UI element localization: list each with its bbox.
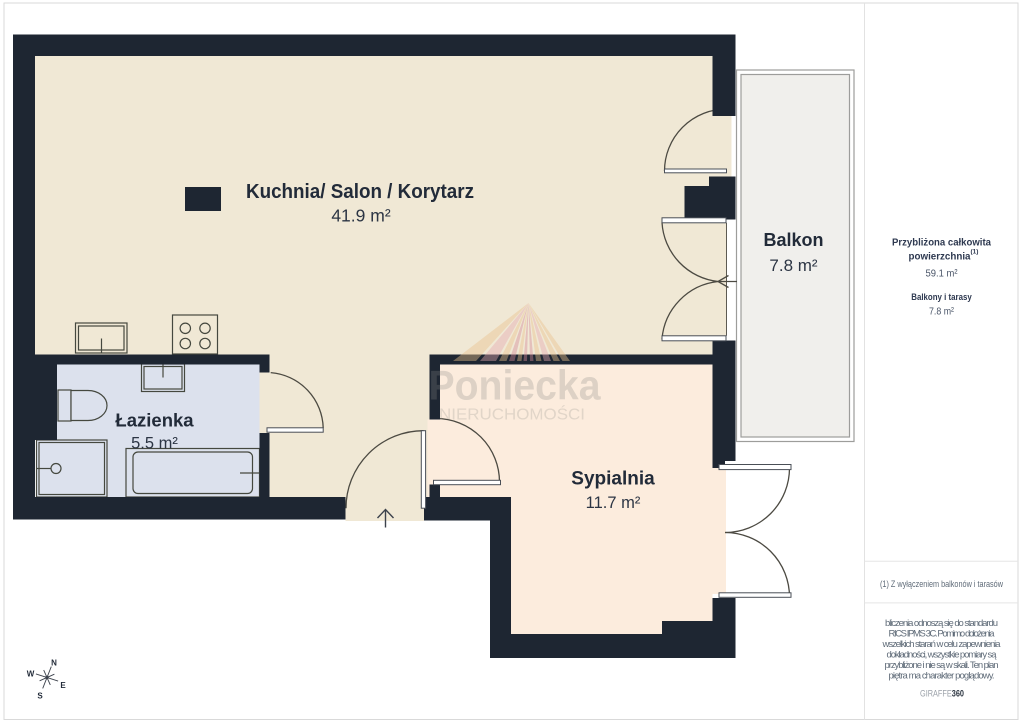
svg-text:Balkony i tarasy: Balkony i tarasy [911, 292, 972, 302]
svg-text:wszelkich starań w celu zapewn: wszelkich starań w celu zapewnienia [882, 639, 1002, 650]
svg-text:11.7 m²: 11.7 m² [586, 494, 641, 512]
svg-text:E: E [60, 681, 66, 690]
svg-text:NIERUCHOMOŚCI: NIERUCHOMOŚCI [439, 406, 585, 424]
svg-text:59.1 m²: 59.1 m² [926, 269, 959, 280]
svg-text:powierzchnia: powierzchnia [909, 251, 971, 263]
svg-text:N: N [51, 659, 57, 668]
svg-text:5.5 m²: 5.5 m² [131, 435, 178, 453]
svg-text:RICS IPMS 3C. Pomimo dołożenia: RICS IPMS 3C. Pomimo dołożenia [889, 629, 996, 640]
svg-text:GIRAFFE360: GIRAFFE360 [920, 689, 964, 700]
svg-text:Sypialnia: Sypialnia [571, 469, 655, 490]
svg-text:7.8 m²: 7.8 m² [769, 256, 818, 275]
svg-text:piętra ma charakter poglądowy.: piętra ma charakter poglądowy. [889, 671, 995, 682]
svg-text:W: W [27, 670, 35, 679]
svg-text:Poniecka: Poniecka [429, 362, 602, 409]
svg-text:Balkon: Balkon [763, 230, 823, 250]
svg-text:S: S [37, 692, 43, 701]
svg-text:7.8 m²: 7.8 m² [929, 307, 955, 318]
svg-text:bliczenia odnoszą się do stand: bliczenia odnoszą się do standardu [885, 618, 998, 629]
svg-text:Kuchnia/ Salon / Korytarz: Kuchnia/ Salon / Korytarz [246, 181, 474, 203]
svg-text:przybliżone i nie są w skali.: przybliżone i nie są w skali. Ten plan [885, 660, 999, 671]
svg-text:Przybliżona całkowita: Przybliżona całkowita [892, 237, 991, 249]
svg-text:dokładności, wszystkie pomiary: dokładności, wszystkie pomiary są [887, 650, 998, 661]
svg-text:(1) Z wyłączeniem balkonów i t: (1) Z wyłączeniem balkonów i tarasów [880, 579, 1003, 590]
svg-text:(1): (1) [971, 249, 979, 256]
svg-text:Łazienka: Łazienka [115, 410, 194, 431]
svg-text:41.9 m²: 41.9 m² [331, 206, 390, 226]
